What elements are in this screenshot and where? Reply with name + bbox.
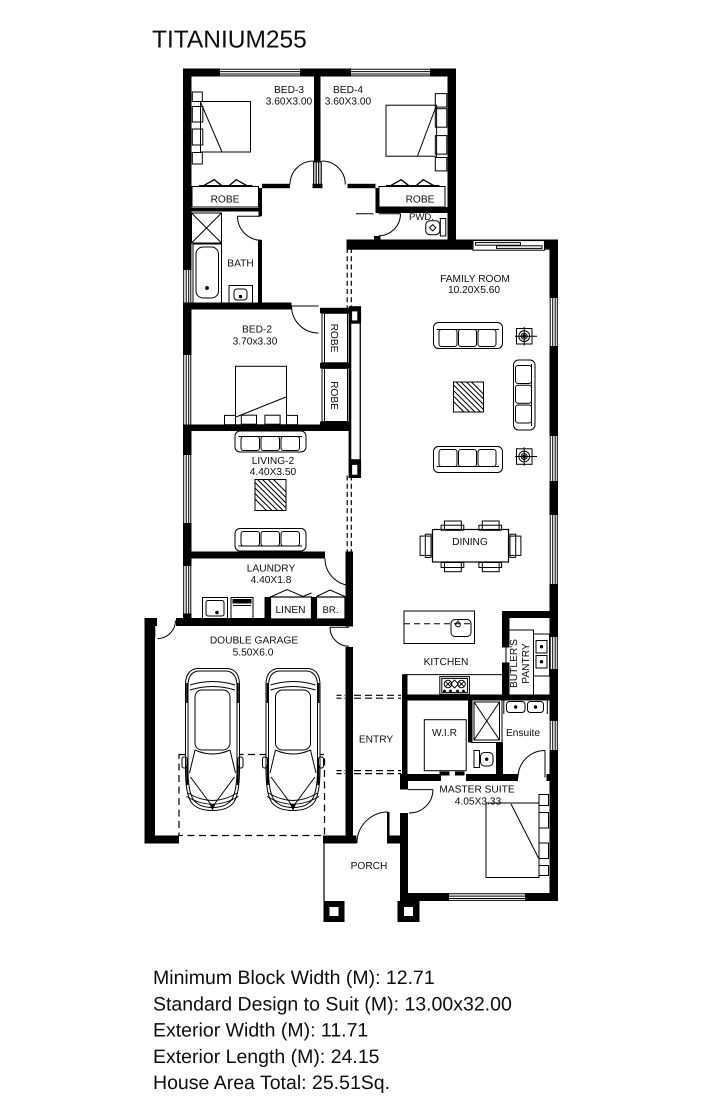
svg-text:W.I.R: W.I.R <box>432 728 457 739</box>
svg-text:DINING: DINING <box>452 537 488 548</box>
svg-text:4.05X3.33: 4.05X3.33 <box>455 796 502 807</box>
svg-text:ROBE: ROBE <box>328 381 339 410</box>
svg-text:BED-2: BED-2 <box>242 324 272 335</box>
svg-text:KITCHEN: KITCHEN <box>424 657 469 668</box>
svg-text:DOUBLE GARAGE: DOUBLE GARAGE <box>210 635 299 646</box>
svg-text:3.60X3.00: 3.60X3.00 <box>325 97 372 108</box>
svg-text:5.50X6.0: 5.50X6.0 <box>233 648 274 659</box>
svg-text:FAMILY ROOM: FAMILY ROOM <box>440 274 510 285</box>
svg-text:PORCH: PORCH <box>351 861 388 872</box>
svg-text:ROBE: ROBE <box>211 195 240 206</box>
svg-text:LINEN: LINEN <box>275 605 305 616</box>
svg-text:BED-3: BED-3 <box>274 85 304 96</box>
svg-text:House Area Total: 25.51Sq.: House Area Total: 25.51Sq. <box>153 1072 390 1094</box>
svg-text:ROBE: ROBE <box>328 324 339 353</box>
svg-text:ROBE: ROBE <box>406 195 435 206</box>
svg-text:BATH: BATH <box>227 259 253 270</box>
svg-text:LIVING-2: LIVING-2 <box>252 456 295 467</box>
svg-text:LAUNDRY: LAUNDRY <box>247 564 296 575</box>
svg-text:PANTRY: PANTRY <box>521 643 532 684</box>
svg-text:Ensuite: Ensuite <box>506 728 540 739</box>
svg-text:BED-4: BED-4 <box>333 85 363 96</box>
svg-text:Minimum Block Width (M): 12.71: Minimum Block Width (M): 12.71 <box>153 967 435 989</box>
svg-text:ENTRY: ENTRY <box>359 734 394 745</box>
svg-text:BUTLER'S: BUTLER'S <box>509 639 520 688</box>
svg-text:Exterior Width (M): 11.71: Exterior Width (M): 11.71 <box>153 1020 368 1042</box>
svg-text:10.20X5.60: 10.20X5.60 <box>448 285 500 296</box>
svg-text:4.40X1.8: 4.40X1.8 <box>251 575 292 586</box>
svg-text:3.70x3.30: 3.70x3.30 <box>233 337 278 348</box>
svg-text:Exterior Length (M): 24.15: Exterior Length (M): 24.15 <box>153 1046 380 1068</box>
svg-text:4.40X3.50: 4.40X3.50 <box>250 467 297 478</box>
svg-text:TITANIUM255: TITANIUM255 <box>152 27 307 54</box>
svg-text:BR.: BR. <box>323 605 339 616</box>
svg-text:MASTER SUITE: MASTER SUITE <box>439 784 514 795</box>
svg-text:3.60X3.00: 3.60X3.00 <box>266 97 313 108</box>
svg-text:Standard Design to Suit (M): 1: Standard Design to Suit (M): 13.00x32.00 <box>153 993 512 1015</box>
